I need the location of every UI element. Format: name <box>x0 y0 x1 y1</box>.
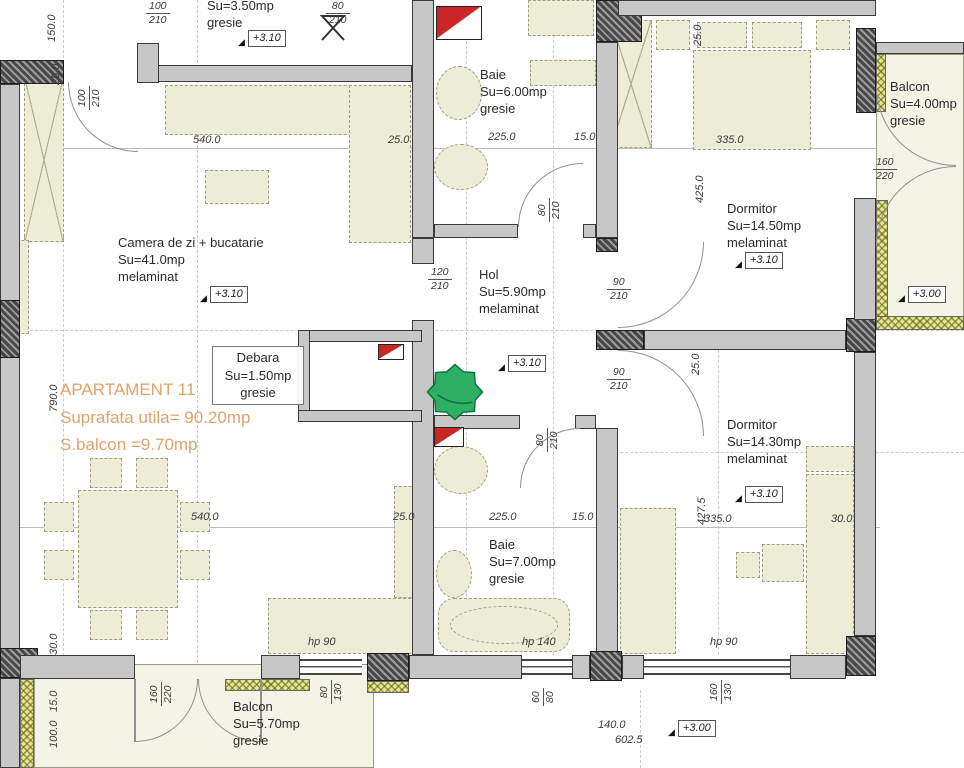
pillow <box>697 22 747 48</box>
ventilation-shaft <box>434 427 464 447</box>
wall <box>596 238 618 252</box>
kitchen-counter <box>349 85 411 243</box>
room-name: Balcon <box>890 78 957 95</box>
room-label-balcon-right: Balcon Su=4.00mp gresie <box>890 78 957 129</box>
insulation-hatch <box>876 316 964 330</box>
door-width: 90 <box>607 276 631 290</box>
room-finish: melaminat <box>727 234 801 251</box>
room-area: Su=14.50mp <box>727 217 801 234</box>
level-marker: ◢ +3.00 <box>898 286 946 303</box>
room-name: Camera de zi + bucatarie <box>118 234 264 251</box>
door-height: 210 <box>550 198 563 222</box>
room-area: Su=6.00mp <box>480 83 547 100</box>
wall <box>409 655 522 679</box>
pillow <box>752 22 802 48</box>
ventilation-shaft <box>378 344 404 360</box>
room-label-dormitor-bottom: Dormitor Su=14.30mp melaminat <box>727 416 801 467</box>
room-name: Debara <box>218 349 298 367</box>
window-size-80-130: 80 130 <box>318 680 344 704</box>
room-name: Dormitor <box>727 416 801 433</box>
chair <box>44 502 74 532</box>
wall <box>876 42 964 54</box>
level-marker: ◢ +3.10 <box>498 355 546 372</box>
room-area: Su=3.50mp <box>207 0 274 14</box>
wall <box>618 0 876 16</box>
room-label-living: Camera de zi + bucatarie Su=41.0mp melam… <box>118 234 264 285</box>
wall <box>261 655 300 679</box>
door-width: 120 <box>428 266 452 280</box>
bed <box>693 50 811 150</box>
room-name: Balcon <box>233 698 300 715</box>
level-triangle-icon: ◢ <box>238 38 245 47</box>
wall <box>412 0 434 238</box>
dim-602-bottom: 602.5 <box>615 734 643 746</box>
dim-hp90-left: hp 90 <box>308 636 336 648</box>
room-finish: gresie <box>890 112 957 129</box>
sink <box>436 66 482 120</box>
wall <box>0 678 20 768</box>
room-label-balcon-bottom: Balcon Su=5.70mp gresie <box>233 698 300 749</box>
bed <box>806 474 854 654</box>
cabinet <box>528 0 594 36</box>
level-marker: ◢ +3.10 <box>238 30 286 47</box>
dim-25-midright: 25.0 <box>690 354 702 375</box>
dim-790-left: 790.0 <box>48 384 60 412</box>
wall <box>596 428 618 655</box>
level-value: +3.10 <box>745 486 783 503</box>
dim-25-top: 25.0 <box>388 134 409 146</box>
dim-15-mid: 15.0 <box>572 511 593 523</box>
wall <box>854 198 876 320</box>
room-area: Su=41.0mp <box>118 251 264 268</box>
wall <box>790 655 846 679</box>
window-width: 60 <box>530 688 544 706</box>
door-height: 210 <box>146 14 170 27</box>
room-label-dormitor-top: Dormitor Su=14.50mp melaminat <box>727 200 801 251</box>
toilet <box>436 550 472 598</box>
dim-225-top: 225.0 <box>488 131 516 143</box>
debara-wall <box>298 330 422 342</box>
door-height: 210 <box>90 86 103 110</box>
door-size-160-220-right: 160 220 <box>873 156 897 182</box>
wall <box>572 655 590 679</box>
chair <box>736 552 760 578</box>
nightstand <box>656 20 690 50</box>
door-height: 220 <box>873 170 897 183</box>
wall <box>575 415 596 429</box>
sofa <box>268 598 426 654</box>
dim-540-top: 540.0 <box>193 134 221 146</box>
level-value: +3.00 <box>678 720 716 737</box>
wall <box>412 238 434 264</box>
chair <box>44 550 74 580</box>
room-area: Su=4.00mp <box>890 95 957 112</box>
door-width: 90 <box>607 366 631 380</box>
grid-line <box>718 350 719 655</box>
chair <box>90 610 122 640</box>
room-label-baie-top: Baie Su=6.00mp gresie <box>480 66 547 117</box>
insulation-hatch <box>367 681 409 693</box>
level-value: +3.10 <box>210 286 248 303</box>
level-triangle-icon: ◢ <box>735 260 742 269</box>
wall <box>434 224 518 238</box>
wall <box>590 651 622 681</box>
dim-25-mid: 25.0 <box>393 511 414 523</box>
room-area: Su=14.30mp <box>727 433 801 450</box>
dim-427-right: 427.5 <box>696 497 708 525</box>
room-finish: melaminat <box>727 450 801 467</box>
level-marker: ◢ +3.10 <box>735 252 783 269</box>
wall <box>846 318 876 352</box>
level-value: +3.00 <box>908 286 946 303</box>
ventilation-shaft <box>436 6 482 40</box>
toilet <box>434 144 488 190</box>
window-width: 80 <box>318 680 332 704</box>
chair <box>136 458 168 488</box>
room-label-hol: Hol Su=5.90mp melaminat <box>479 266 546 317</box>
room-area: Su=7.00mp <box>489 553 556 570</box>
room-finish: gresie <box>489 570 556 587</box>
column <box>137 43 159 83</box>
dining-table <box>78 490 178 608</box>
dim-30-mid: 30.0 <box>831 513 852 525</box>
wardrobe <box>620 508 676 654</box>
door-height: 210 <box>607 380 631 393</box>
door-arc <box>618 242 704 328</box>
room-label-baie-bottom: Baie Su=7.00mp gresie <box>489 536 556 587</box>
wall <box>20 655 135 679</box>
level-marker: ◢ +3.10 <box>735 486 783 503</box>
dim-15-top: 15.0 <box>574 131 595 143</box>
door-width: 80 <box>534 428 548 452</box>
wall <box>583 224 596 238</box>
level-marker: ◢ +3.00 <box>668 720 716 737</box>
level-triangle-icon: ◢ <box>898 294 905 303</box>
door-height: 210 <box>607 290 631 303</box>
door-height: 220 <box>162 682 175 706</box>
window <box>300 659 362 675</box>
room-finish: melaminat <box>118 268 264 285</box>
door-size-90-210-bottom: 90 210 <box>607 366 631 392</box>
wall <box>596 42 618 238</box>
dim-150-left: 150.0 <box>46 14 58 42</box>
level-triangle-icon: ◢ <box>498 363 505 372</box>
door-size-80-210: 80 210 <box>326 0 350 26</box>
apartment-summary: APARTAMENT 11 Suprafata utila= 90.20mp S… <box>60 376 250 459</box>
window-height: 130 <box>332 680 345 704</box>
wall <box>367 653 409 681</box>
door-width: 160 <box>873 156 897 170</box>
level-triangle-icon: ◢ <box>735 494 742 503</box>
door-size-80-210-baie-top: 80 210 <box>536 198 562 222</box>
window-size-60-80: 60 80 <box>530 688 556 706</box>
door-size-120-210: 120 210 <box>428 266 452 292</box>
dim-30-left: 30.0 <box>48 634 60 655</box>
chair <box>136 610 168 640</box>
level-value: +3.10 <box>745 252 783 269</box>
room-name: Dormitor <box>727 200 801 217</box>
kitchen-island <box>205 170 269 204</box>
dim-25-left: 25.0 <box>50 64 62 85</box>
dim-hp140: hp 140 <box>522 636 556 648</box>
door-height: 210 <box>548 428 561 452</box>
wall <box>0 300 20 358</box>
insulation-hatch <box>20 679 34 768</box>
wall <box>0 84 20 650</box>
wall <box>622 655 644 679</box>
dim-hp90-right: hp 90 <box>710 636 738 648</box>
dim-225-mid: 225.0 <box>489 511 517 523</box>
level-triangle-icon: ◢ <box>200 294 207 303</box>
door-width: 80 <box>326 0 350 14</box>
level-marker: ◢ +3.10 <box>200 286 248 303</box>
room-finish: melaminat <box>479 300 546 317</box>
plant-icon <box>426 362 484 422</box>
dim-25-topright: 25.0 <box>692 25 704 46</box>
dim-335-top: 335.0 <box>716 134 744 146</box>
dim-425-right: 425.0 <box>694 175 706 203</box>
floor-plan: Su=3.50mp gresie Camera de zi + bucatari… <box>0 0 964 768</box>
window-size-160-130: 160 130 <box>708 680 734 704</box>
room-finish: gresie <box>480 100 547 117</box>
room-area: Su=5.90mp <box>479 283 546 300</box>
level-value: +3.10 <box>508 355 546 372</box>
apartment-title: APARTAMENT 11 <box>60 376 250 404</box>
room-name: Baie <box>480 66 547 83</box>
desk <box>762 544 804 582</box>
apartment-usable-area: Suprafata utila= 90.20mp <box>60 404 250 432</box>
dim-100-left: 100.0 <box>48 720 60 748</box>
door-size-80-210-baie-bottom: 80 210 <box>534 428 560 452</box>
window <box>644 659 790 675</box>
wall <box>644 330 846 350</box>
window-width: 160 <box>708 680 722 704</box>
wall <box>856 28 876 113</box>
door-height: 210 <box>428 280 452 293</box>
window-height: 130 <box>722 680 735 704</box>
wardrobe <box>24 78 64 242</box>
door-height: 210 <box>326 14 350 27</box>
room-finish: gresie <box>233 732 300 749</box>
nightstand <box>816 20 850 50</box>
wall <box>158 65 412 82</box>
door-size-160-220-bottom: 160 220 <box>148 682 174 706</box>
grid-line <box>640 690 641 768</box>
door-leaf <box>134 679 136 742</box>
room-area: Su=5.70mp <box>233 715 300 732</box>
level-value: +3.10 <box>248 30 286 47</box>
sink <box>434 446 488 494</box>
wall <box>596 330 644 350</box>
dim-540-mid: 540.0 <box>191 511 219 523</box>
chair <box>180 550 210 580</box>
door-size-100-210-left: 100 210 <box>76 86 102 110</box>
pillow <box>806 446 854 472</box>
dim-335-mid: 335.0 <box>704 513 732 525</box>
room-name: Baie <box>489 536 556 553</box>
dim-15-left: 15.0 <box>48 691 60 712</box>
door-width: 160 <box>148 682 162 706</box>
chair <box>90 458 122 488</box>
door-size-100-210: 100 210 <box>146 0 170 26</box>
room-label-top: Su=3.50mp gresie <box>207 0 274 31</box>
door-width: 80 <box>536 198 550 222</box>
door-width: 100 <box>76 86 90 110</box>
window-height: 80 <box>544 688 557 706</box>
room-name: Hol <box>479 266 546 283</box>
window <box>522 659 572 675</box>
level-triangle-icon: ◢ <box>668 728 675 737</box>
debara-wall <box>298 410 422 422</box>
dim-140-bottom: 140.0 <box>598 719 626 731</box>
wall <box>846 636 876 676</box>
room-finish: gresie <box>207 14 274 31</box>
wall <box>854 352 876 636</box>
door-width: 100 <box>146 0 170 14</box>
door-size-90-210-top: 90 210 <box>607 276 631 302</box>
apartment-balcony-area: S.balcon =9.70mp <box>60 431 250 459</box>
